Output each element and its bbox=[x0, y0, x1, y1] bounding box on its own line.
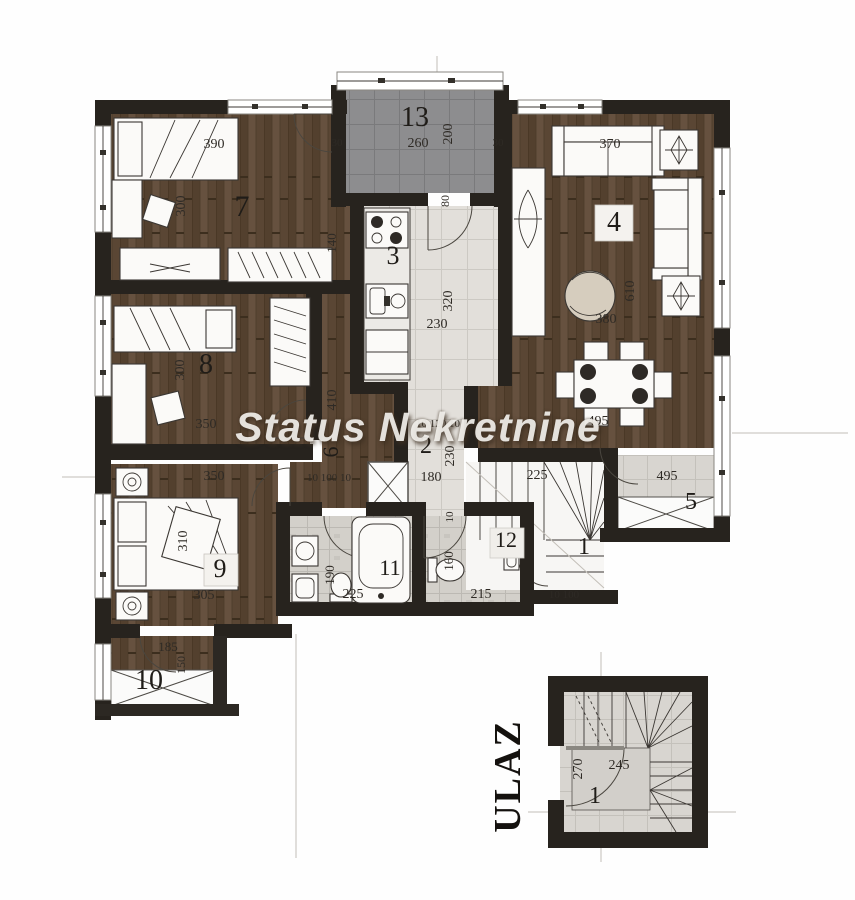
washing-machine bbox=[292, 536, 318, 566]
dimension-label: 180 bbox=[421, 470, 442, 485]
dimension-label: 80 bbox=[438, 195, 452, 207]
window-balcony10-left bbox=[95, 644, 111, 700]
dimension-label: 10 100 bbox=[549, 589, 580, 601]
dimension-label: 390 bbox=[204, 137, 225, 152]
entrance-label: ULAZ bbox=[487, 719, 529, 833]
dimension-label: 310 bbox=[176, 531, 191, 552]
room-number-label: 6 bbox=[318, 447, 343, 458]
dimension-label: 225 bbox=[527, 468, 548, 483]
window-dining-right bbox=[714, 356, 730, 516]
dimension-label: 230 bbox=[443, 446, 458, 467]
room-number-label: 7 bbox=[235, 190, 250, 223]
room-number-label: 11 bbox=[379, 555, 400, 580]
room-number-label: 3 bbox=[387, 241, 400, 270]
terrace-rail bbox=[337, 72, 503, 90]
wardrobe-room7 bbox=[228, 248, 332, 282]
floor-plan-drawing: ULAZ 39030260200303703001408061032023038… bbox=[0, 0, 855, 900]
dimension-label: 380 bbox=[596, 312, 617, 327]
room-number-label: 2 bbox=[420, 433, 432, 459]
dimension-label: 30 bbox=[493, 137, 505, 149]
window-living-top bbox=[518, 100, 602, 114]
dimension-label: 300 bbox=[173, 360, 188, 381]
window-room7-top bbox=[228, 100, 332, 114]
window-room8-left bbox=[95, 296, 111, 396]
dimension-label: 185 bbox=[158, 639, 178, 654]
dimension-label: 230 bbox=[427, 317, 448, 332]
sink bbox=[366, 284, 408, 318]
balcony-10-x bbox=[111, 670, 215, 706]
dimension-label: 10 120 10 bbox=[416, 418, 461, 430]
dimension-label: 160 bbox=[441, 551, 456, 571]
dimension-label: 140 bbox=[324, 233, 339, 253]
dimension-label: 300 bbox=[174, 196, 189, 217]
window-room9-left bbox=[95, 494, 111, 598]
dimension-label: 200 bbox=[441, 124, 456, 145]
window-living-right bbox=[714, 148, 730, 328]
hall-6-floor-c bbox=[290, 462, 368, 508]
dimension-label: 410 bbox=[325, 390, 340, 411]
room-number-label: 1 bbox=[578, 534, 590, 560]
dimension-label: 495 bbox=[588, 414, 609, 429]
room-number-label: 13 bbox=[401, 102, 429, 133]
dimension-label: 190 bbox=[322, 565, 337, 585]
plant-top bbox=[660, 130, 698, 170]
room-number-label: 9 bbox=[214, 554, 227, 583]
dimension-label: 350 bbox=[196, 417, 217, 432]
dining-floor-ext bbox=[476, 386, 514, 448]
room-number-label: 8 bbox=[199, 349, 213, 380]
entrance-stair-unit: ULAZ bbox=[487, 676, 708, 848]
dimension-label: 305 bbox=[194, 588, 215, 603]
dimension-label: 10 bbox=[444, 511, 456, 523]
dimension-label: 350 bbox=[204, 469, 225, 484]
dimension-label: 270 bbox=[571, 759, 586, 780]
wardrobe-room8 bbox=[270, 298, 310, 386]
balcony-5-x bbox=[618, 497, 714, 531]
dimension-label: 610 bbox=[623, 281, 638, 302]
dimension-label: 370 bbox=[600, 137, 621, 152]
dimension-label: 320 bbox=[441, 291, 456, 312]
dimension-label: 150 bbox=[174, 656, 188, 674]
dimension-label: 30 bbox=[332, 137, 344, 149]
plant-bottom bbox=[662, 276, 700, 316]
floor-plan-page: ULAZ 39030260200303703001408061032023038… bbox=[0, 0, 855, 900]
niche-radiator bbox=[512, 168, 545, 336]
room-number-label: 5 bbox=[685, 489, 697, 515]
room-number-label: 4 bbox=[607, 207, 621, 238]
washbasin bbox=[292, 574, 318, 602]
room-number-label: 12 bbox=[495, 527, 517, 552]
room-number-label: 10 bbox=[135, 665, 163, 696]
dimension-label: 215 bbox=[471, 587, 492, 602]
window-room7-left bbox=[95, 126, 111, 232]
room-number-label: 1 bbox=[589, 783, 601, 809]
dimension-label: 495 bbox=[657, 469, 678, 484]
dimension-label: 260 bbox=[408, 136, 429, 151]
dimension-label: 245 bbox=[609, 758, 630, 773]
dimension-label: 10 100 10 bbox=[307, 472, 352, 484]
kitchen-3-furniture bbox=[364, 208, 410, 380]
dimension-label: 225 bbox=[343, 587, 364, 602]
